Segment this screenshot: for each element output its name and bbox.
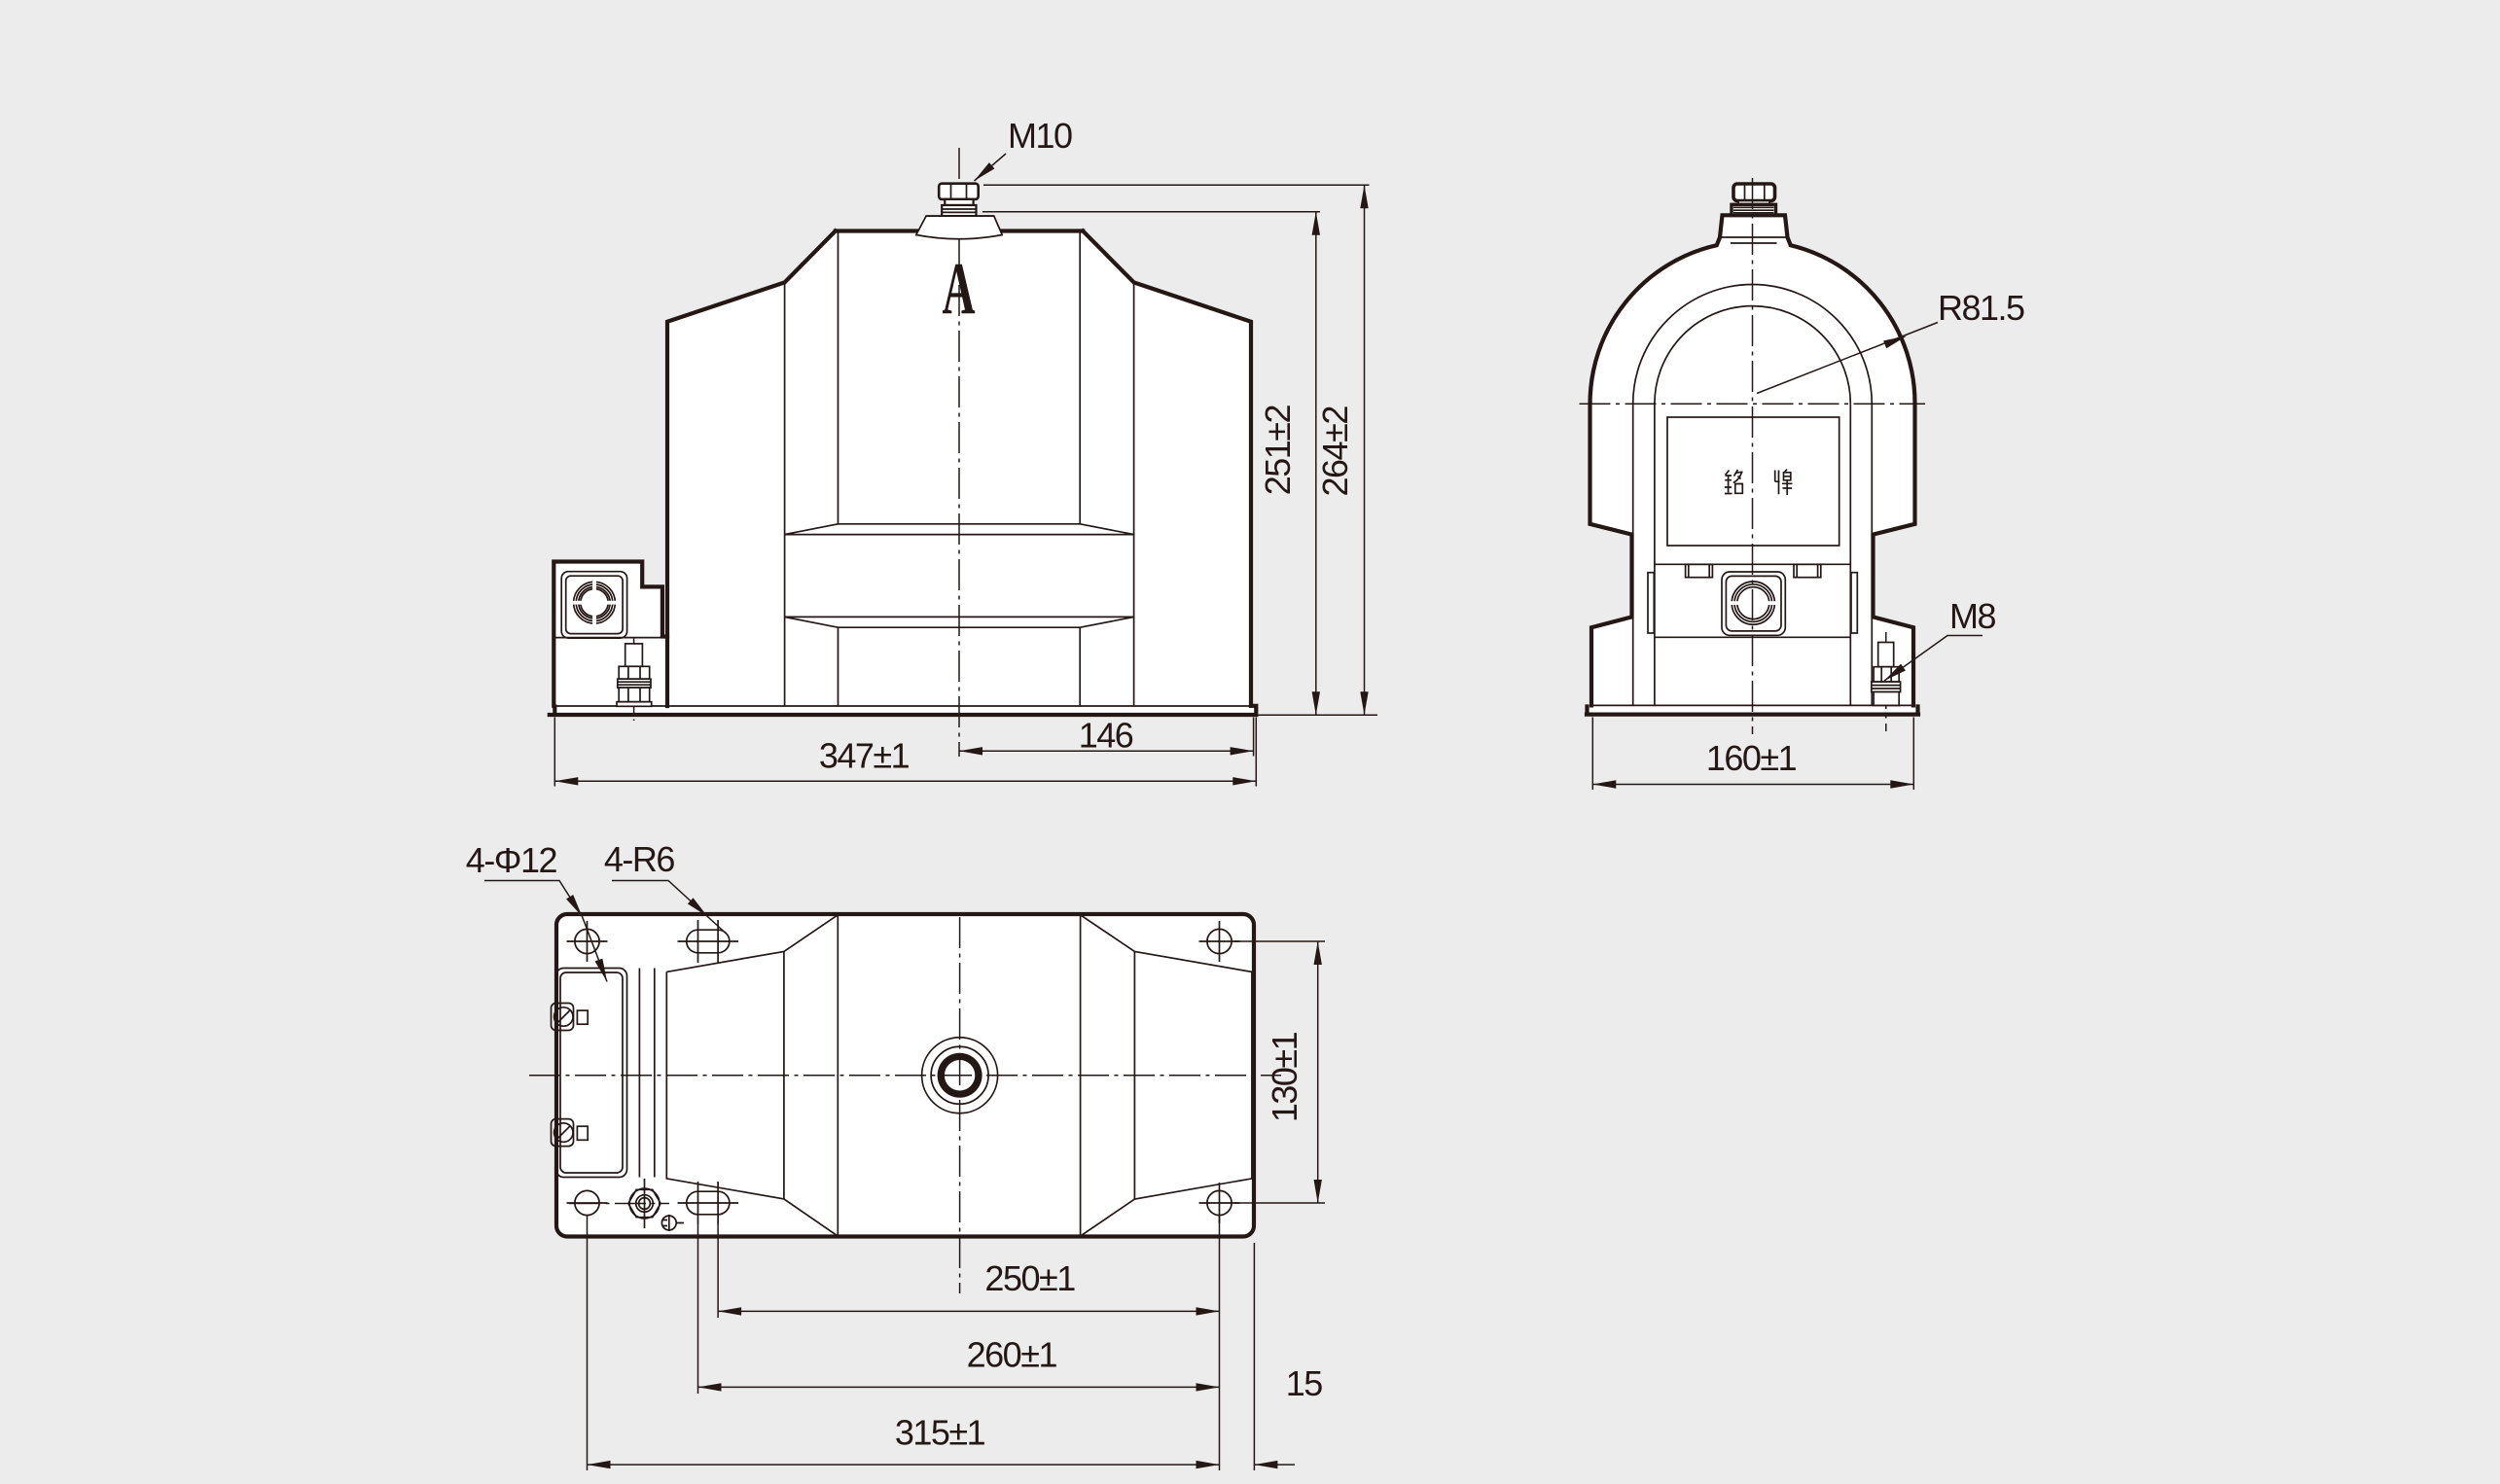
svg-text:315±1: 315±1: [895, 1413, 985, 1453]
svg-text:260±1: 260±1: [967, 1335, 1057, 1375]
svg-text:M8: M8: [1949, 596, 1995, 636]
svg-text:R81.5: R81.5: [1938, 288, 2024, 328]
svg-text:264±2: 264±2: [1315, 406, 1355, 497]
svg-text:15: 15: [1286, 1363, 1323, 1403]
svg-text:251±2: 251±2: [1258, 405, 1298, 495]
svg-text:250±1: 250±1: [984, 1258, 1075, 1298]
svg-text:160±1: 160±1: [1706, 738, 1797, 778]
svg-text:130±1: 130±1: [1265, 1032, 1304, 1122]
svg-text:M10: M10: [1008, 116, 1072, 156]
svg-text:4-Φ12: 4-Φ12: [466, 840, 557, 880]
svg-text:A: A: [942, 248, 975, 330]
svg-text:4-R6: 4-R6: [604, 839, 675, 879]
svg-text:347±1: 347±1: [819, 736, 910, 776]
svg-text:146: 146: [1079, 716, 1133, 756]
